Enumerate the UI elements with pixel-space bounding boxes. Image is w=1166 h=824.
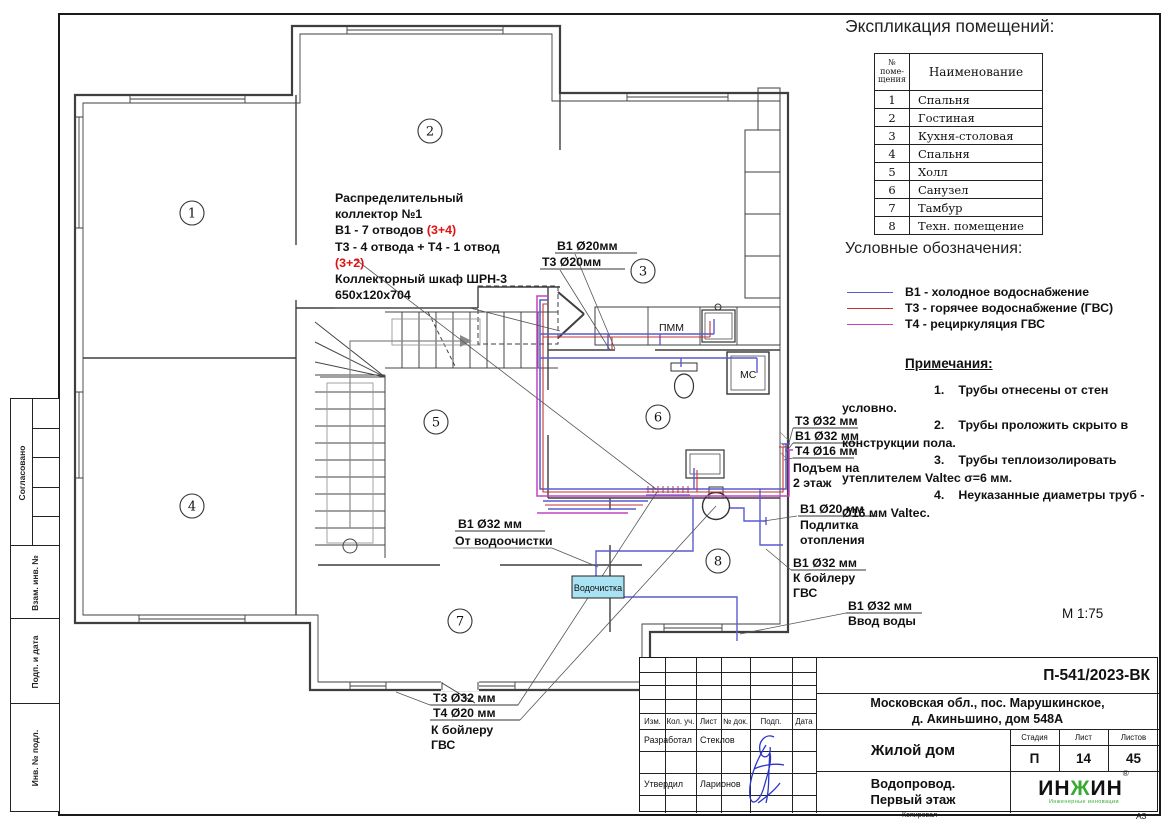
collector-annotation: Распределительный коллектор №1 В1 - 7 от… — [335, 190, 553, 303]
legend-item-b1: В1 - холодное водоснабжение — [847, 284, 1113, 300]
t3-line-swatch — [847, 308, 893, 309]
format-label: А3 — [1136, 811, 1146, 821]
t4-line-swatch — [847, 324, 893, 325]
note-2: 2.Трубы проложить скрыто в конструкции п… — [842, 417, 1152, 452]
manifold — [646, 486, 690, 495]
room-number-2: 2 — [426, 125, 434, 140]
tb-drawing-name: Водопровод. Первый этаж — [816, 771, 1010, 813]
copied-label: Копировал — [902, 812, 937, 819]
tb-doc-number: П-541/2023-ВК — [820, 661, 1150, 691]
tb-col-data: Дата — [792, 713, 816, 729]
notes-title: Примечания: — [905, 356, 993, 371]
tb-stage-value: П — [1010, 745, 1059, 771]
tb-object-name: Жилой дом — [816, 729, 1010, 771]
legend-item-t4: Т4 - рециркуляция ГВС — [847, 316, 1113, 332]
tb-sheets-value: 45 — [1108, 745, 1159, 771]
label-hot-t4: Т4 Ø20 мм — [433, 706, 496, 720]
table-row: 7Тамбур — [875, 199, 1043, 217]
tb-sheet-label: Лист — [1059, 729, 1108, 745]
tb-col-podp: Подп. — [750, 713, 792, 729]
label-hot-t3: Т3 Ø32 мм — [433, 691, 496, 705]
tb-address: Московская обл., пос. Марушкинское, д. А… — [818, 694, 1157, 728]
explication-col-name-header: Наименование — [910, 54, 1043, 91]
collector-annotation-line6: Коллекторный шкаф ШРН-3 — [335, 271, 553, 287]
notes: 1.Трубы отнесены от стен условно. 2.Труб… — [842, 382, 1152, 522]
title-block: Изм. Кол. уч. Лист № док. Подп. Дата Раз… — [639, 657, 1158, 812]
tb-stage-label: Стадия — [1010, 729, 1059, 745]
label-dishwasher: ПММ — [659, 322, 684, 334]
tb-col-dok: № док. — [721, 713, 750, 729]
label-inlet-b1: В1 Ø32 мм — [848, 599, 912, 613]
table-row: 2Гостиная — [875, 109, 1043, 127]
water-treatment-box: Водочистка — [572, 576, 624, 598]
label-filter-b1: В1 Ø32 мм — [458, 517, 522, 531]
explication-title: Экспликация помещений: — [845, 16, 1055, 37]
label-hot-text1: К бойлеру — [431, 723, 493, 737]
logo-text: ИНЖИН® — [1038, 778, 1129, 799]
fixtures — [671, 304, 788, 520]
table-row: 5Холл — [875, 163, 1043, 181]
signature — [736, 731, 794, 811]
company-logo: ИНЖИН® Инженерные инновации — [1010, 771, 1158, 812]
room-number-6: 6 — [654, 411, 662, 426]
label-boiler-b1: В1 Ø32 мм — [793, 556, 857, 570]
collector-annotation-line5: (3+2) — [335, 255, 553, 271]
tb-col-kol: Кол. уч. — [665, 713, 696, 729]
legend: В1 - холодное водоснабжение Т3 - горячее… — [847, 284, 1113, 332]
leader-lines — [335, 254, 846, 720]
tb-col-izm: Изм. — [640, 713, 665, 729]
table-row: 1Спальня — [875, 91, 1043, 109]
label-inlet-text: Ввод воды — [848, 614, 916, 628]
note-3: 3.Трубы теплоизолировать утеплителем Val… — [842, 452, 1152, 487]
legend-item-t3: Т3 - горячее водоснабжение (ГВС) — [847, 300, 1113, 316]
tb-role-approved: Утвердил — [641, 773, 698, 795]
b1-line-swatch — [847, 292, 893, 293]
tb-col-list: Лист — [696, 713, 721, 729]
label-riser-text2: 2 этаж — [793, 476, 832, 490]
toilet-tank — [671, 363, 697, 371]
collector-annotation-line2: коллектор №1 — [335, 206, 553, 222]
explication-table: № поме- щения Наименование 1Спальня 2Гос… — [874, 53, 1043, 235]
collector-annotation-line4: Т3 - 4 отвода + Т4 - 1 отвод — [335, 239, 553, 255]
room-number-8: 8 — [714, 555, 722, 570]
label-boiler-text1: К бойлеру — [793, 571, 855, 585]
collector-annotation-line7: 650х120х704 — [335, 287, 553, 303]
legend-title: Условные обозначения: — [845, 240, 1022, 258]
room-number-7: 7 — [456, 615, 464, 630]
label-boiler-text2: ГВС — [793, 586, 817, 600]
room-number-5: 5 — [432, 416, 440, 431]
label-filter-text: От водоочистки — [455, 534, 553, 548]
drawing-sheet: Согласовано Взам. инв. № Подп. и дата Ин… — [0, 0, 1166, 824]
tb-role-developed: Разработал — [641, 729, 698, 751]
note-1: 1.Трубы отнесены от стен условно. — [842, 382, 1152, 417]
logo-subtitle: Инженерные инновации — [1049, 800, 1119, 806]
water-treatment-label: Водочистка — [574, 583, 622, 593]
label-makeup-text2: отопления — [800, 533, 865, 547]
toilet-bowl — [675, 374, 694, 398]
collector-annotation-line1: Распределительный — [335, 190, 553, 206]
table-row: 6Санузел — [875, 181, 1043, 199]
label-washer: МС — [740, 369, 757, 381]
room-number-1: 1 — [188, 207, 196, 222]
label-kitchen-b1: В1 Ø20мм — [557, 239, 618, 253]
table-row: 4Спальня — [875, 145, 1043, 163]
table-row: 3Кухня-столовая — [875, 127, 1043, 145]
room-number-4: 4 — [188, 500, 196, 515]
room-number-3: 3 — [639, 265, 647, 280]
label-hot-text2: ГВС — [431, 738, 455, 752]
note-4: 4.Неуказанные диаметры труб - Ø16 мм Val… — [842, 487, 1152, 522]
table-row: 8Техн. помещение — [875, 217, 1043, 235]
tb-sheet-value: 14 — [1059, 745, 1108, 771]
tb-sheets-label: Листов — [1108, 729, 1159, 745]
explication-col-num-header: № поме- щения — [875, 54, 910, 91]
collector-annotation-line3: В1 - 7 отводов (3+4) — [335, 222, 553, 238]
scale-label: М 1:75 — [1062, 606, 1103, 621]
